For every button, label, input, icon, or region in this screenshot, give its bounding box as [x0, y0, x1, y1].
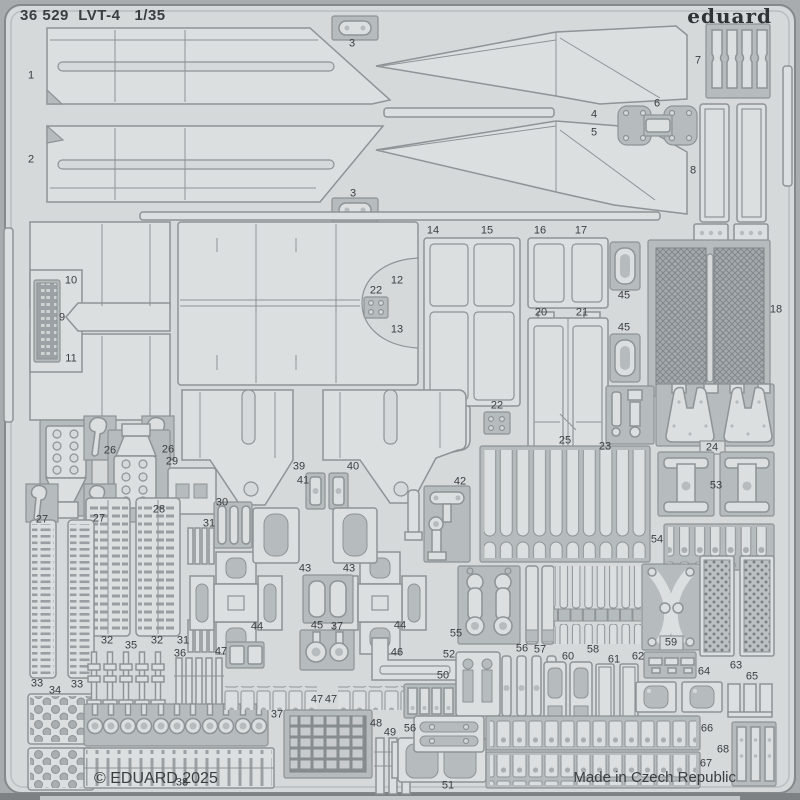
sheet-title: 36 529 LVT-4 1/35: [20, 7, 166, 24]
part-68: [732, 722, 776, 786]
part-65: [728, 684, 772, 717]
copyright-text: © EDUARD 2025: [94, 770, 218, 788]
part-22-b: [484, 412, 510, 434]
part-45-b: [610, 334, 640, 382]
part-48: [284, 710, 372, 778]
part-22-a: [364, 297, 388, 318]
carrier-strip: [140, 212, 660, 220]
part-24: [656, 384, 774, 454]
edge-strip-left: [4, 228, 13, 422]
parts-9-10-11: [30, 222, 170, 420]
part-56-b: [414, 716, 484, 752]
part-52: [456, 652, 500, 716]
parts-16-17: [528, 238, 608, 308]
part-58: [554, 566, 641, 644]
carrier-strip-2: [384, 108, 554, 117]
fret-graphic: [0, 0, 800, 800]
part-37-row: [84, 704, 268, 746]
slot-plate: [303, 575, 353, 623]
eduard-logo: eduard: [687, 4, 772, 28]
part-55: [458, 566, 520, 644]
part-50: [404, 684, 458, 718]
part-23: [606, 386, 654, 444]
part-18: [648, 240, 770, 396]
part-25: [480, 446, 650, 562]
part-30: [214, 502, 252, 548]
part-66: [486, 716, 700, 750]
part-3-a: [332, 16, 378, 40]
made-in-text: Made in Czech Republic: [573, 769, 736, 786]
part-59: [642, 564, 700, 650]
edge-strip-right: [783, 66, 792, 186]
next-sheet-edge: [40, 796, 740, 800]
parts-45-37-rings: [300, 630, 354, 670]
part-45-a: [610, 242, 640, 290]
photoetch-sheet-image: 1233456789101112131415161718202122222324…: [0, 0, 800, 800]
part-62: [644, 652, 696, 678]
part-7: [706, 24, 770, 98]
part-47-a: [226, 642, 264, 668]
